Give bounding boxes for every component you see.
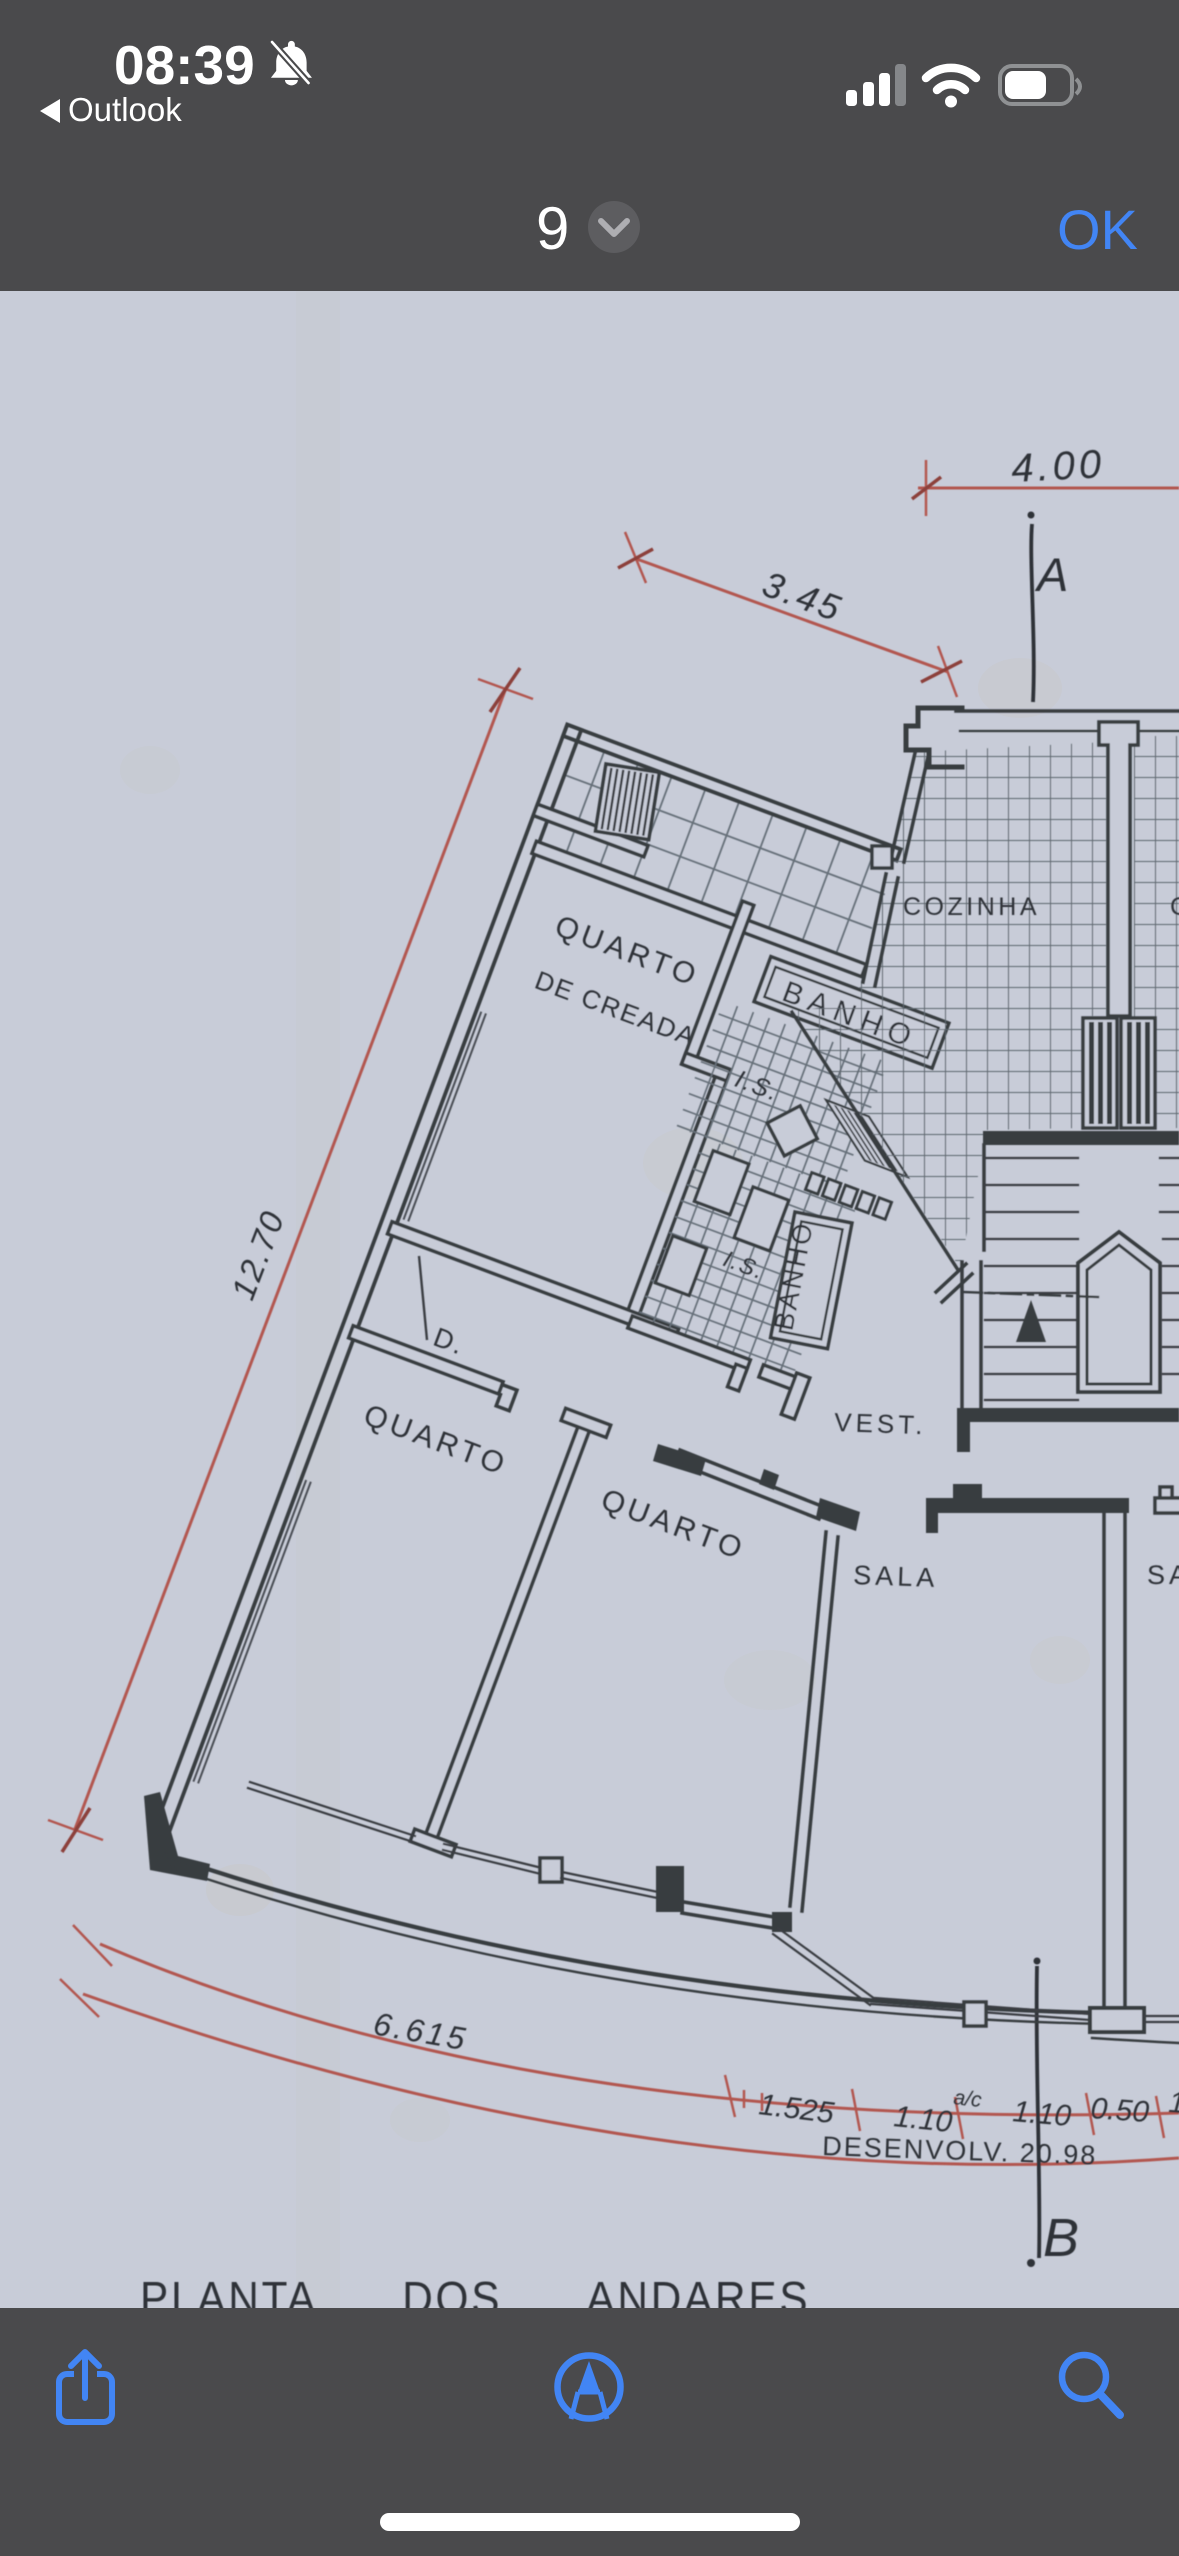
- svg-text:1.: 1.: [1168, 2086, 1179, 2121]
- svg-text:CO: CO: [1170, 893, 1179, 921]
- svg-text:a/c: a/c: [952, 2086, 983, 2112]
- svg-text:4.00: 4.00: [1010, 442, 1106, 491]
- svg-text:9: 9: [536, 195, 569, 262]
- svg-text:A: A: [1034, 548, 1068, 601]
- svg-text:VEST.: VEST.: [834, 1407, 927, 1440]
- svg-text:SA: SA: [1147, 1560, 1179, 1590]
- svg-text:COZINHA: COZINHA: [903, 893, 1040, 921]
- svg-text:08:39: 08:39: [114, 34, 255, 96]
- svg-text:1.10: 1.10: [1011, 2095, 1072, 2133]
- svg-text:B: B: [1043, 2208, 1079, 2268]
- svg-text:0.50: 0.50: [1090, 2092, 1151, 2129]
- svg-text:SALA: SALA: [853, 1560, 939, 1593]
- svg-text:OK: OK: [1057, 198, 1138, 261]
- svg-text:Outlook: Outlook: [68, 91, 182, 128]
